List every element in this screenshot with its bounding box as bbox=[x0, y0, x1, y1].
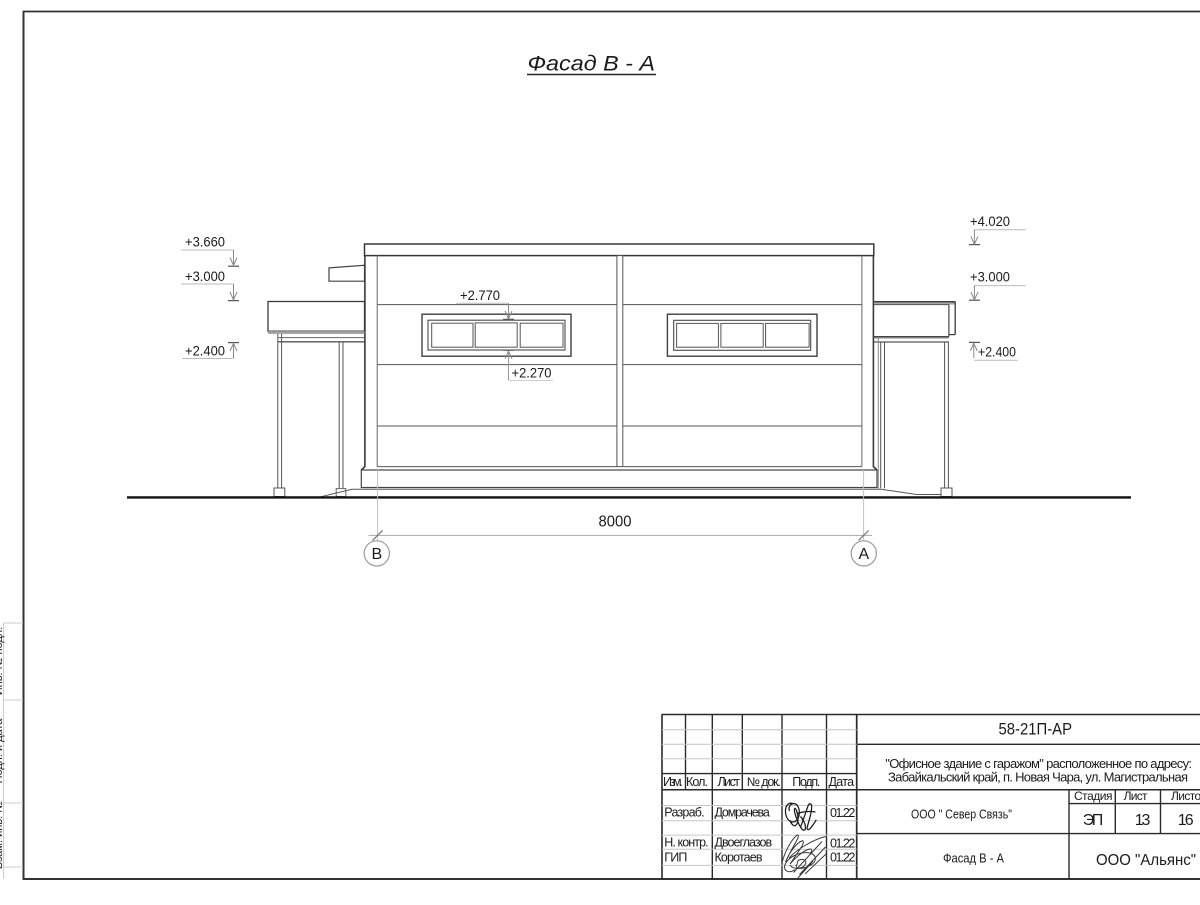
svg-text:13: 13 bbox=[1135, 812, 1151, 829]
svg-text:Фасад В - А: Фасад В - А bbox=[943, 851, 1005, 865]
svg-text:Н. контр.: Н. контр. bbox=[664, 835, 708, 849]
svg-text:Кол.: Кол. bbox=[686, 775, 708, 789]
svg-text:Стадия: Стадия bbox=[1074, 789, 1113, 803]
svg-text:Инв. № подл.: Инв. № подл. bbox=[0, 627, 5, 696]
svg-text:+3.660: +3.660 bbox=[185, 235, 225, 250]
svg-text:№ док.: № док. bbox=[747, 775, 781, 789]
svg-text:Подп. и дата: Подп. и дата bbox=[0, 718, 5, 784]
svg-text:А: А bbox=[858, 546, 869, 563]
svg-text:Лист: Лист bbox=[1124, 789, 1148, 803]
svg-text:8000: 8000 bbox=[599, 514, 632, 531]
svg-text:+2.400: +2.400 bbox=[185, 344, 225, 359]
svg-text:01.22: 01.22 bbox=[830, 837, 855, 851]
svg-text:Дата: Дата bbox=[829, 775, 855, 789]
svg-text:Взам. инв. №: Взам. инв. № bbox=[0, 801, 5, 869]
svg-text:+4.020: +4.020 bbox=[970, 214, 1010, 229]
svg-text:ГИП: ГИП bbox=[664, 850, 687, 864]
svg-text:+2.770: +2.770 bbox=[460, 288, 500, 303]
svg-text:Лист: Лист bbox=[718, 775, 741, 789]
svg-text:В: В bbox=[371, 546, 382, 563]
svg-text:ООО " Север Связь": ООО " Север Связь" bbox=[911, 808, 1012, 822]
svg-text:+2.270: +2.270 bbox=[512, 366, 552, 381]
svg-text:+2.400: +2.400 bbox=[978, 345, 1016, 360]
svg-text:+3.000: +3.000 bbox=[970, 269, 1010, 284]
svg-text:01.22: 01.22 bbox=[830, 806, 855, 820]
svg-text:Домрачева: Домрачева bbox=[715, 806, 770, 820]
svg-text:01.22: 01.22 bbox=[830, 851, 855, 865]
svg-text:Коротаев: Коротаев bbox=[715, 851, 763, 865]
svg-text:Листов: Листов bbox=[1171, 789, 1200, 803]
svg-text:ООО "Альянс": ООО "Альянс" bbox=[1096, 852, 1196, 869]
svg-text:16: 16 bbox=[1178, 812, 1194, 829]
svg-text:Забайкальский край, п. Новая Ч: Забайкальский край, п. Новая Чара, ул. М… bbox=[888, 769, 1188, 784]
svg-text:ЭП: ЭП bbox=[1083, 812, 1103, 829]
svg-text:Подп.: Подп. bbox=[792, 775, 820, 789]
svg-text:Разраб.: Разраб. bbox=[664, 805, 704, 819]
svg-text:Фасад В - А: Фасад В - А bbox=[528, 53, 656, 76]
svg-text:Двоеглазов: Двоеглазов bbox=[715, 836, 773, 850]
svg-text:Изм.: Изм. bbox=[663, 775, 683, 789]
svg-text:58-21П-АР: 58-21П-АР bbox=[999, 721, 1073, 739]
svg-text:+3.000: +3.000 bbox=[185, 269, 225, 284]
